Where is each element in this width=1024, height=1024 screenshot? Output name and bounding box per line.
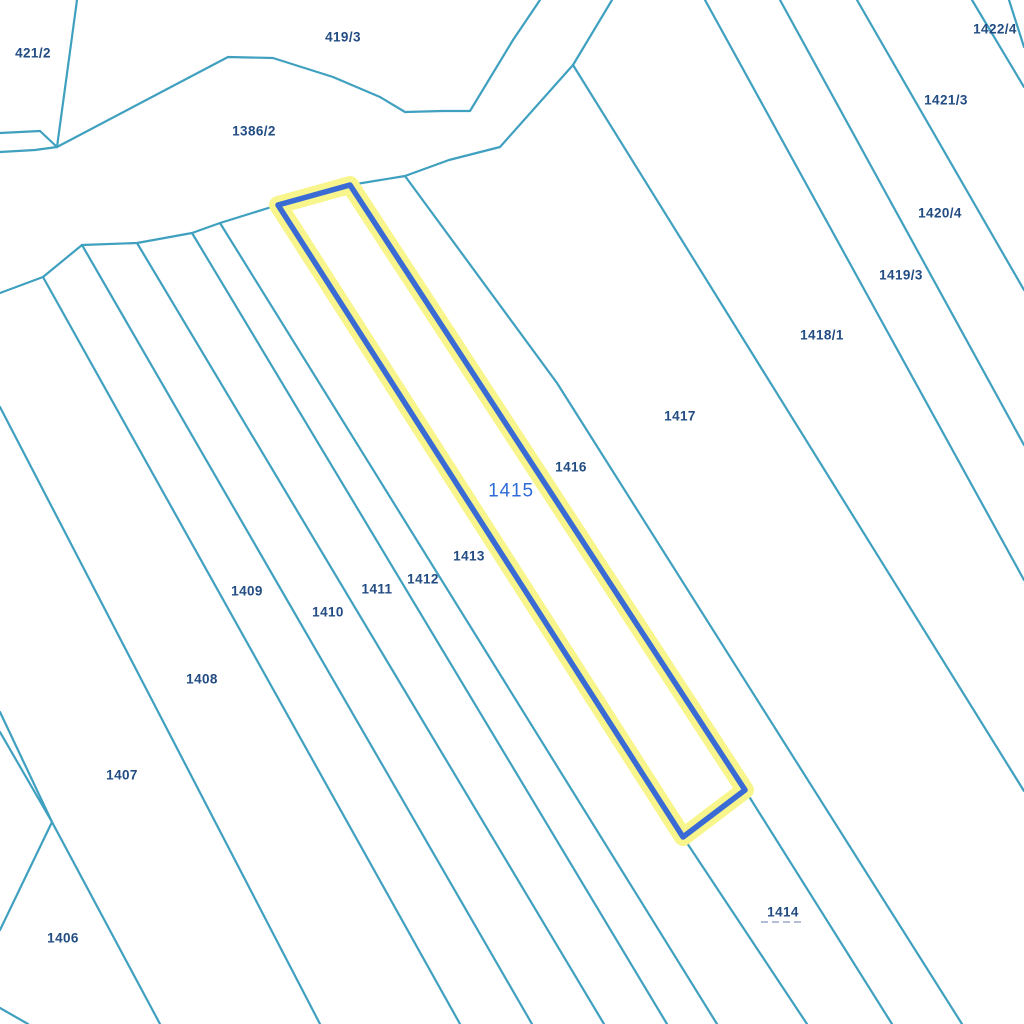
parcel-label-1420-4[interactable]: 1420/4 (918, 206, 962, 221)
map-viewport[interactable]: 421/2419/31386/21422/41421/31420/41419/3… (0, 0, 1024, 1024)
boundary-line-boundary-421-2-east (57, 0, 77, 147)
boundary-line-sliver-west (0, 131, 57, 147)
boundary-line-southwest-wedge (0, 732, 52, 930)
parcel-label-1410[interactable]: 1410 (312, 605, 344, 620)
parcel-label-1421-3[interactable]: 1421/3 (924, 93, 968, 108)
parcel-label-1412[interactable]: 1412 (407, 572, 439, 587)
parcel-label-419-3[interactable]: 419/3 (325, 30, 361, 45)
parcel-label-1407[interactable]: 1407 (106, 768, 138, 783)
parcel-label-1415[interactable]: 1415 (488, 481, 534, 502)
parcel-label-1418-1[interactable]: 1418/1 (800, 328, 844, 343)
boundary-line-strip-1416-1417 (405, 176, 962, 1024)
parcel-label-1406[interactable]: 1406 (47, 931, 79, 946)
selected-parcel-highlight[interactable] (278, 185, 745, 837)
parcel-label-1419-3[interactable]: 1419/3 (879, 268, 923, 283)
boundary-line-strip-1419-1420 (780, 0, 1024, 445)
parcel-label-1414[interactable]: 1414 (767, 905, 799, 920)
parcel-label-421-2[interactable]: 421/2 (15, 46, 51, 61)
boundary-line-ridge-north-of-strips (0, 65, 573, 293)
boundary-line-strip-1411-1412 (192, 233, 667, 1024)
parcel-label-1408[interactable]: 1408 (186, 672, 218, 687)
boundary-line-junction-north-leg (573, 0, 612, 65)
selected-parcel-halo (278, 185, 745, 837)
boundary-line-strip-1413-ext-below-highlight (683, 837, 807, 1024)
selected-parcel-layer (278, 185, 745, 837)
parcel-label-1417[interactable]: 1417 (664, 409, 696, 424)
parcel-label-1416[interactable]: 1416 (555, 460, 587, 475)
boundary-line-strip-1418-1419 (705, 0, 1024, 580)
boundary-line-corner-southwest (0, 1008, 28, 1024)
parcel-label-1422-4[interactable]: 1422/4 (973, 22, 1017, 37)
boundary-line-southwest-long (0, 712, 160, 1024)
cadastral-map[interactable]: 421/2419/31386/21422/41421/31420/41419/3… (0, 0, 1024, 1024)
parcel-label-1409[interactable]: 1409 (231, 584, 263, 599)
parcel-label-1386-2[interactable]: 1386/2 (232, 124, 276, 139)
parcel-label-1411[interactable]: 1411 (362, 582, 393, 597)
parcel-label-1413[interactable]: 1413 (453, 549, 485, 564)
parcel-boundaries-layer (0, 0, 1024, 1024)
boundary-line-strip-1421-1422 (972, 0, 1024, 87)
